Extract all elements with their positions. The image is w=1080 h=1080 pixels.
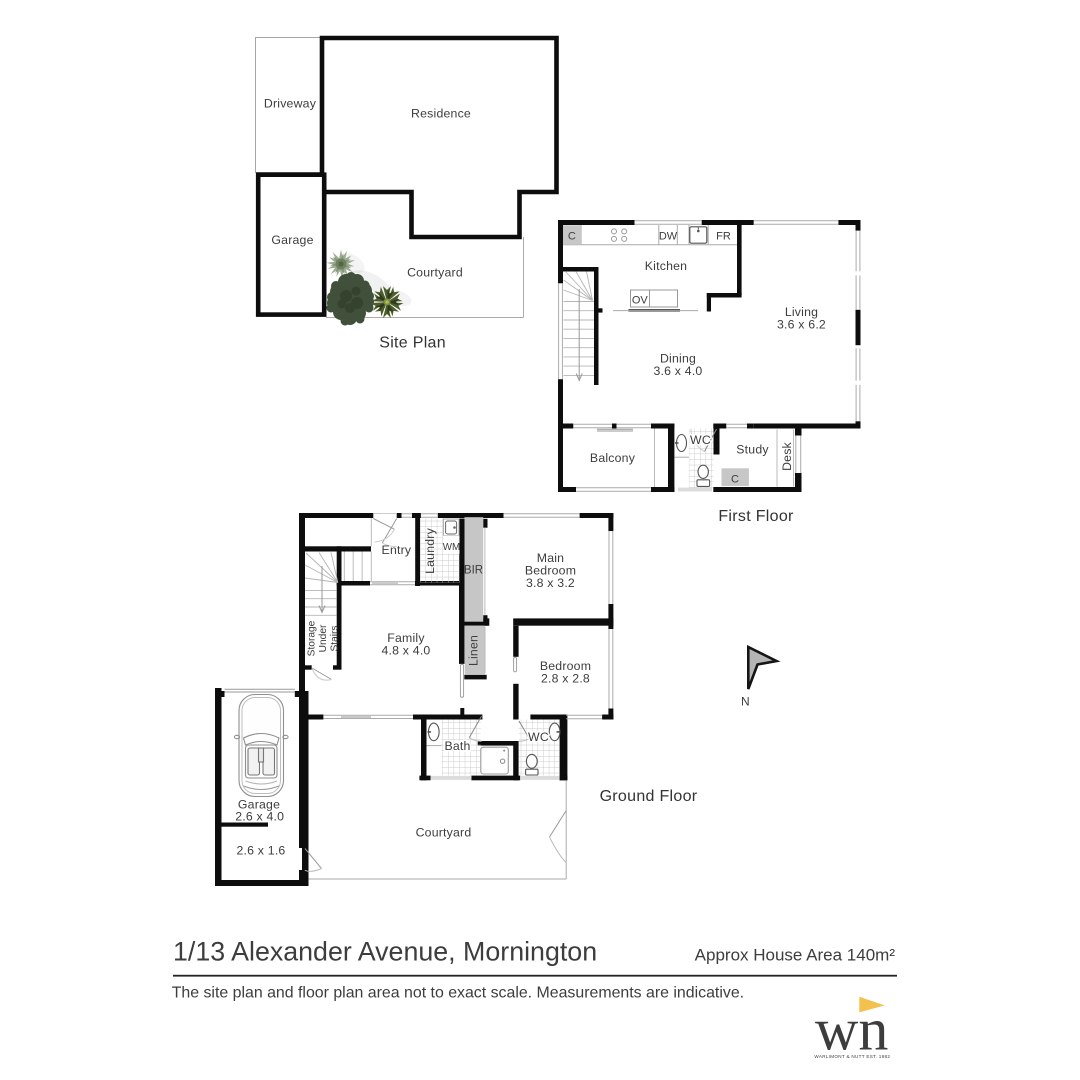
svg-text:3.8 x 3.2: 3.8 x 3.2: [526, 576, 575, 590]
svg-text:Entry: Entry: [382, 543, 412, 557]
svg-text:WC: WC: [690, 433, 711, 447]
svg-text:3.6 x 6.2: 3.6 x 6.2: [777, 317, 826, 331]
svg-text:Approx House Area 140m²: Approx House Area 140m²: [695, 946, 896, 965]
svg-text:C: C: [731, 473, 739, 485]
svg-text:Bath: Bath: [444, 739, 470, 753]
svg-text:2.6 x 1.6: 2.6 x 1.6: [237, 843, 286, 857]
svg-text:WARLIMONT & NUTT EST. 1982: WARLIMONT & NUTT EST. 1982: [814, 1054, 890, 1059]
svg-text:3.6 x 4.0: 3.6 x 4.0: [654, 364, 703, 378]
svg-text:Driveway: Driveway: [264, 96, 317, 110]
svg-text:Desk: Desk: [780, 441, 794, 470]
svg-text:Under: Under: [318, 624, 329, 652]
svg-text:Site Plan: Site Plan: [379, 334, 446, 351]
svg-text:Garage: Garage: [271, 233, 313, 247]
svg-text:2.8 x 2.8: 2.8 x 2.8: [541, 671, 590, 685]
svg-text:First Floor: First Floor: [718, 508, 794, 525]
svg-text:Storage: Storage: [307, 620, 318, 656]
svg-text:WC: WC: [528, 730, 549, 744]
svg-text:Courtyard: Courtyard: [407, 265, 463, 279]
svg-text:Study: Study: [736, 442, 769, 456]
svg-text:C: C: [568, 231, 576, 243]
svg-text:BIR: BIR: [464, 564, 483, 576]
svg-text:Ground Floor: Ground Floor: [600, 788, 698, 805]
svg-text:Laundry: Laundry: [423, 527, 437, 573]
svg-text:DW: DW: [659, 231, 678, 243]
svg-text:4.8 x 4.0: 4.8 x 4.0: [382, 644, 431, 658]
svg-text:The site plan and floor plan a: The site plan and floor plan area not to…: [172, 985, 744, 1002]
svg-text:wn: wn: [815, 997, 888, 1063]
svg-text:OV: OV: [632, 294, 649, 306]
svg-text:1/13 Alexander Avenue, Morning: 1/13 Alexander Avenue, Mornington: [173, 936, 597, 966]
svg-text:Residence: Residence: [411, 107, 471, 121]
svg-text:Stairs: Stairs: [330, 625, 341, 651]
svg-text:FR: FR: [716, 231, 731, 243]
svg-text:Kitchen: Kitchen: [645, 259, 687, 273]
svg-text:WM: WM: [443, 542, 460, 553]
svg-text:Balcony: Balcony: [590, 451, 636, 465]
svg-text:Linen: Linen: [466, 635, 480, 666]
svg-text:2.6 x 4.0: 2.6 x 4.0: [235, 809, 284, 823]
svg-text:Courtyard: Courtyard: [416, 825, 472, 839]
svg-text:N: N: [741, 694, 750, 708]
